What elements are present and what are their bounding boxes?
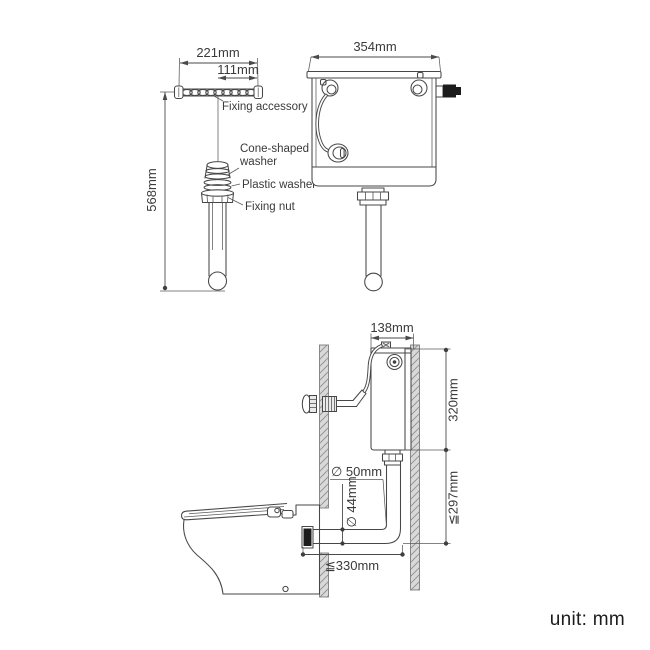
fixing-bar — [175, 86, 263, 99]
fixing-accessory-label: Fixing accessory — [222, 101, 308, 113]
dim-offset-330: ≦330mm — [301, 545, 405, 573]
dim-width-138: 138mm — [370, 320, 413, 349]
fixing-nut-label: Fixing nut — [245, 201, 296, 213]
front-wall-upper — [320, 345, 329, 508]
cistern-front-view: 354mm — [307, 39, 461, 291]
installation-side-view: 138mm 320mm ≦297mm ∅ 50mm — [182, 320, 461, 597]
cistern-side-view — [371, 342, 411, 450]
unit-note: unit: mm — [550, 609, 625, 630]
toilet-side-view — [182, 504, 320, 595]
back-wall — [411, 345, 420, 590]
dim-111-label: 111mm — [217, 62, 258, 77]
dim-330-label: ≦330mm — [325, 558, 379, 573]
dim-354-label: 354mm — [353, 39, 396, 54]
dim-297-label: ≦297mm — [446, 471, 461, 525]
technical-diagram: 221mm 111mm — [0, 0, 650, 650]
flush-pipe-parts — [202, 162, 234, 290]
inlet-connector — [436, 86, 443, 97]
flush-button-assembly — [302, 346, 381, 413]
cistern-front-body — [307, 72, 461, 187]
diagram-canvas: 221mm 111mm — [0, 0, 650, 650]
dim-568-label: 568mm — [144, 168, 159, 211]
dim-221-label: 221mm — [196, 45, 239, 60]
dim-44-label: ∅ 44mm — [344, 476, 359, 527]
flush-pipe-fixings-view: 221mm 111mm — [144, 45, 316, 291]
dim-138-label: 138mm — [370, 320, 413, 335]
dim-width-354: 354mm — [309, 39, 441, 71]
cistern-front-outlet — [358, 188, 389, 291]
dim-320-label: 320mm — [446, 378, 461, 421]
plastic-washer-label: Plastic washer — [242, 179, 316, 191]
cone-washer-label-1: Cone-shaped — [240, 143, 309, 155]
dim-half-width-111: 111mm — [217, 62, 258, 80]
cone-washer-label-2: washer — [239, 156, 277, 168]
dim-pipe-inner-44: ∅ 44mm — [340, 476, 359, 545]
